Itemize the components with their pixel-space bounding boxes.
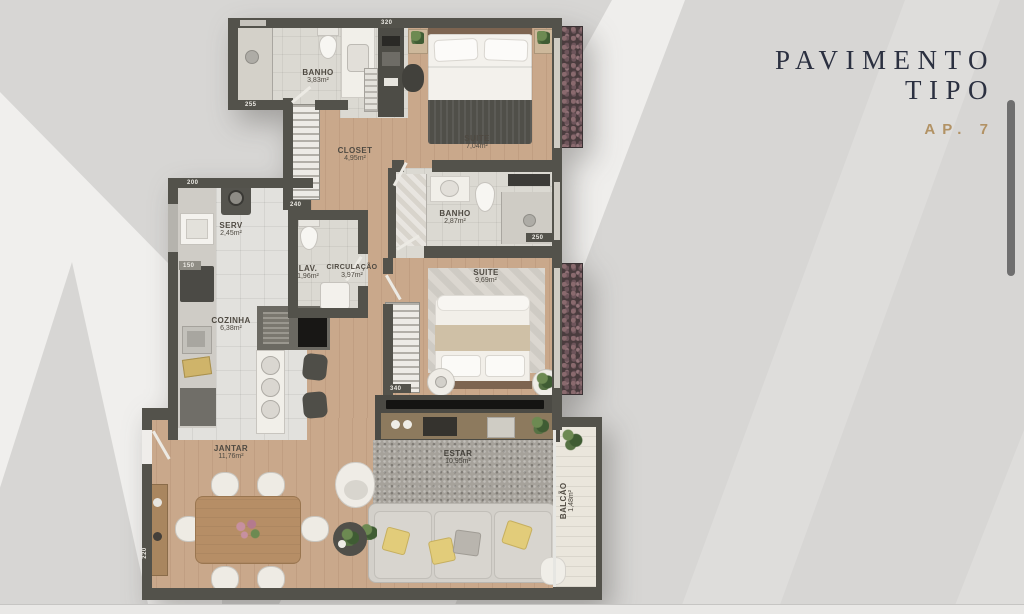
window: [554, 268, 560, 388]
room-area: 3,83m²: [282, 77, 354, 85]
room-name: JANTAR: [195, 444, 267, 453]
bath-shelf: [508, 174, 550, 186]
room-area: 4,95m²: [319, 155, 391, 163]
bed-pillow: [433, 38, 478, 62]
bed-blanket: [435, 325, 530, 351]
dimension-label: 200: [187, 180, 199, 186]
room-name: COZINHA: [195, 316, 267, 325]
towel-rack: [364, 68, 378, 112]
decor-board: [487, 417, 515, 438]
room-name: SUITE: [450, 268, 522, 277]
decor-bowl: [338, 540, 346, 548]
bar-stool: [302, 353, 329, 381]
room-area: 11,76m²: [195, 453, 267, 461]
window: [554, 182, 560, 240]
plant-icon: [531, 416, 549, 434]
burner-icon: [261, 356, 280, 375]
scrollbar-thumb[interactable]: [1007, 100, 1015, 276]
room-name: BANHO: [282, 68, 354, 77]
page-background: { "header": { "title_line1": "PAVIMENTO"…: [0, 0, 1024, 613]
room-label-suite2: SUITE 9,69m²: [450, 268, 522, 286]
table-centerpiece-flowers: [230, 517, 266, 541]
desk-paper: [384, 78, 398, 86]
desk-chair: [402, 64, 424, 92]
shower-head: [523, 214, 536, 227]
window: [168, 204, 178, 252]
room-name: BANHO: [419, 209, 491, 218]
wall-segment: [228, 18, 562, 28]
plant-icon: [411, 31, 424, 44]
bed-duvet-roll: [437, 295, 530, 311]
room-label-banho1: BANHO 3,83m²: [282, 68, 354, 86]
room-name: BALCÃO: [559, 469, 568, 533]
wall-segment: [228, 18, 238, 110]
floor-plan: 255 320 200 150 240 250 340 220 BANHO 3,…: [135, 12, 605, 604]
wall-segment: [424, 246, 558, 258]
wall-segment: [288, 210, 368, 220]
bed-sheet-fold: [428, 66, 532, 68]
wall-segment: [553, 587, 602, 600]
fridge: [180, 266, 214, 302]
room-label-jantar: JANTAR 11,76m²: [195, 444, 267, 462]
balcony-glass-divider: [553, 425, 556, 587]
decor-bowl: [391, 420, 400, 429]
room-name: ESTAR: [422, 449, 494, 458]
room-name: SUITE: [441, 134, 513, 143]
desk-monitor: [382, 36, 400, 46]
armchair-seat: [344, 480, 368, 500]
plant-icon: [559, 426, 585, 452]
window: [554, 38, 560, 148]
room-area: 7,04m²: [441, 143, 513, 151]
dimension-label: 320: [381, 20, 393, 26]
room-label-suite1: SUITE 7,04m²: [441, 134, 513, 152]
bed-pillow: [484, 38, 529, 62]
wall-segment: [596, 417, 602, 597]
wall-segment: [142, 462, 152, 588]
room-area: 2,87m²: [419, 218, 491, 226]
burner-icon: [261, 378, 280, 397]
burner-icon: [261, 400, 280, 419]
shelf-niche: [423, 417, 457, 436]
tv-screen: [386, 400, 544, 409]
room-area: 9,69m²: [450, 277, 522, 285]
room-area: 1,48m²: [568, 469, 576, 533]
page-title-line1: PAVIMENTO: [690, 46, 995, 76]
washer-door: [228, 190, 244, 206]
room-name: CLOSET: [319, 146, 391, 155]
wall-segment: [358, 210, 368, 254]
dimension-label: 250: [532, 235, 544, 241]
wall-segment: [288, 308, 368, 318]
apartment-badge: AP. 7: [690, 121, 995, 138]
room-area: 6,38m²: [195, 325, 267, 333]
dimension-label: 240: [290, 202, 302, 208]
flower-planter: [561, 26, 583, 148]
bar-stool: [302, 391, 328, 419]
window: [240, 20, 266, 26]
dining-chair: [301, 516, 329, 542]
bed-pillow: [485, 355, 525, 377]
wall-segment: [142, 408, 172, 420]
title-block: PAVIMENTO TIPO AP. 7: [690, 46, 995, 138]
room-name: CIRCULAÇÃO: [310, 264, 394, 272]
room-label-closet: CLOSET 4,95m²: [319, 146, 391, 164]
decor-bowl: [403, 420, 412, 429]
table-lamp-icon: [435, 376, 447, 388]
room-area: 2,45m²: [195, 230, 267, 238]
room-label-estar: ESTAR 10,95m²: [422, 449, 494, 467]
sofa: [368, 503, 556, 587]
wall-segment: [142, 588, 560, 600]
plant-icon: [537, 31, 550, 44]
wall-segment: [283, 98, 293, 210]
door-opening: [142, 430, 152, 464]
wall-segment: [315, 100, 348, 110]
base-cabinet: [180, 388, 216, 426]
room-area: 3,97m²: [310, 272, 394, 280]
page-title-line2: TIPO: [690, 76, 995, 106]
desk-tray: [382, 52, 400, 66]
cutting-board: [182, 356, 212, 378]
dimension-label: 255: [245, 102, 257, 108]
room-name: SERV: [195, 221, 267, 230]
room-label-circulacao: CIRCULAÇÃO 3,97m²: [310, 264, 394, 280]
dimension-label: 220: [142, 547, 148, 559]
room-area: 10,95m²: [422, 458, 494, 466]
sofa-pillow-gray: [452, 529, 481, 556]
decor-item: [153, 532, 162, 541]
washbasin: [320, 282, 350, 310]
wall-segment: [432, 160, 562, 172]
room-label-serv: SERV 2,45m²: [195, 221, 267, 239]
shower-head: [245, 50, 259, 64]
decor-item: [153, 498, 162, 507]
wall-segment: [383, 304, 393, 395]
dining-chair: [211, 472, 239, 498]
wall-segment: [553, 417, 602, 427]
bed-suite1: [428, 28, 532, 138]
wall-segment: [388, 246, 396, 258]
room-label-banho2: BANHO 2,87m²: [419, 209, 491, 227]
dimension-label: 150: [183, 263, 195, 269]
room-label-balcao: BALCÃO 1,48m²: [559, 469, 577, 533]
washbasin: [440, 180, 459, 197]
room-label-cozinha: COZINHA 6,38m²: [195, 316, 267, 334]
flower-planter: [561, 263, 583, 395]
dimension-label: 340: [390, 386, 402, 392]
dining-chair: [257, 472, 285, 498]
